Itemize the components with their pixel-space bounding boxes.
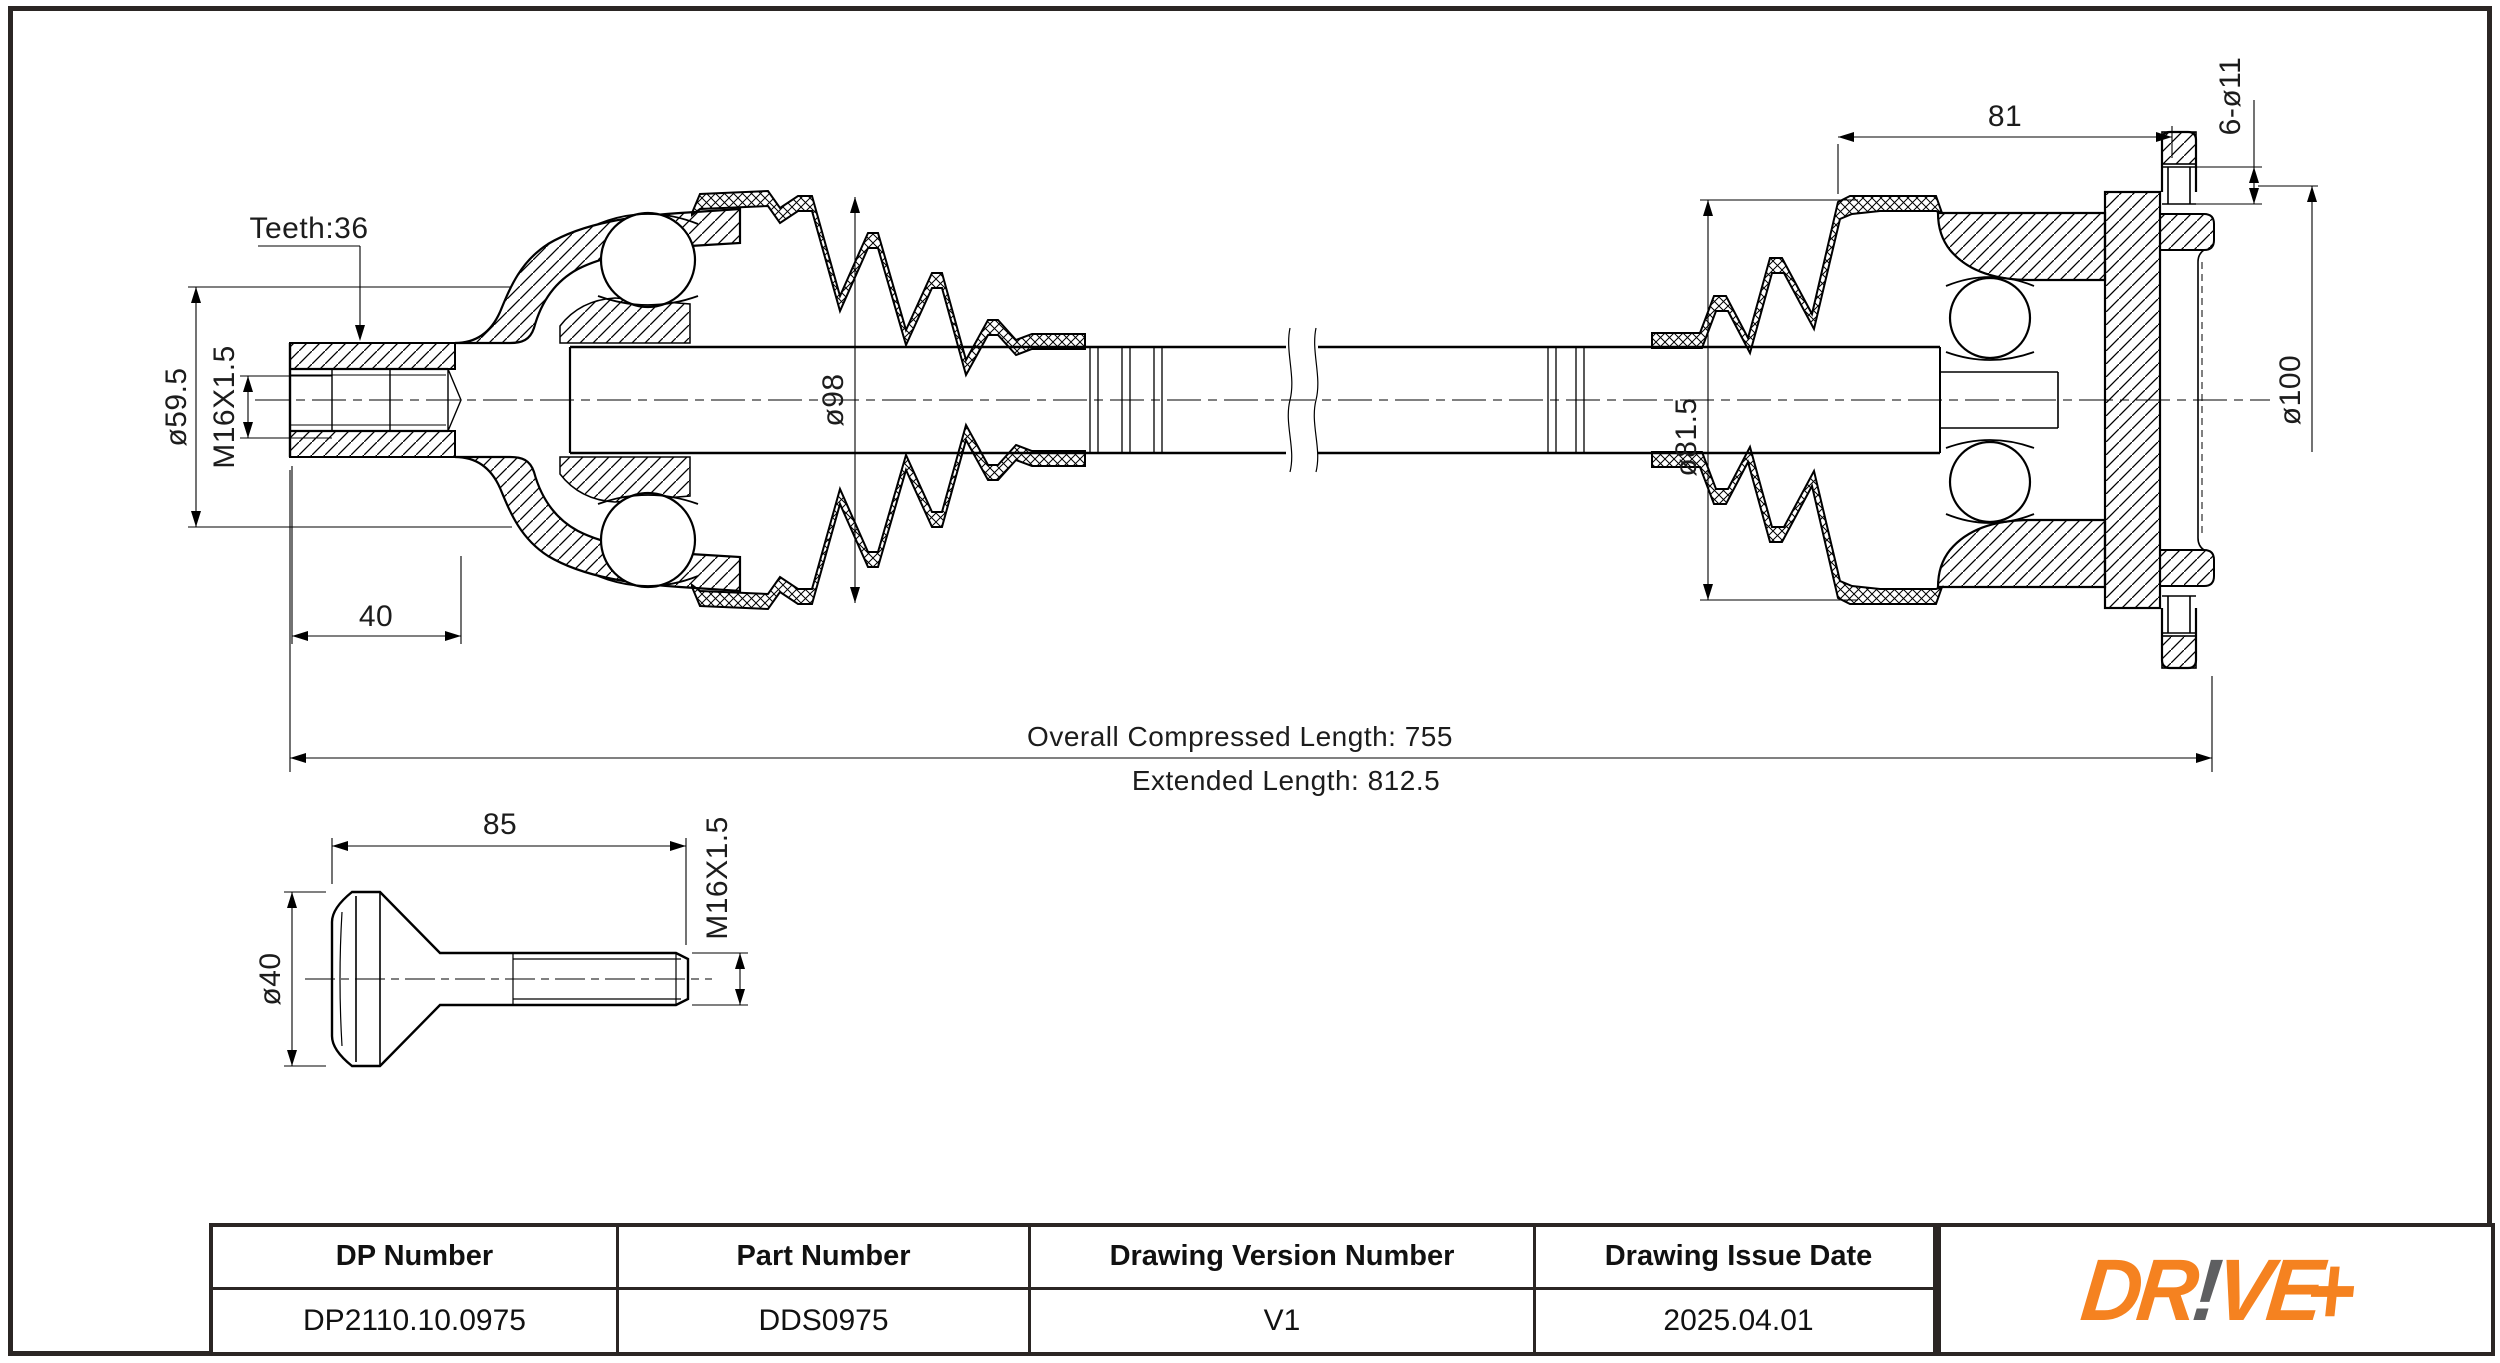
output-flange [2105,132,2214,668]
dim-bolt-holes: 6-ø11 [2214,57,2247,136]
dim-flange-diameter: ø100 [2274,355,2307,425]
drive-plus-logo: DR!VE+ [2077,1246,2355,1333]
dim-bolt-thread: M16X1.5 [701,816,734,940]
title-block-header-drawing-version: Drawing Version Number [1031,1227,1536,1290]
dim-bolt-length: 85 [483,808,517,841]
dim-compressed-length: Overall Compressed Length: 755 [1027,721,1453,752]
logo-plus-icon: + [2301,1241,2355,1339]
brand-logo-box: DR!VE+ [1937,1223,2495,1356]
dimension-lines [188,100,2318,772]
dim-stub-length: 40 [359,600,393,633]
dim-inner-joint-length: 81 [1988,100,2022,133]
bolt-detail-view: 85 ø40 M16X1.5 [254,808,748,1066]
title-block-header-part-number: Part Number [619,1227,1031,1290]
dim-stub-diameter: ø59.5 [160,367,193,446]
title-block-table: DP Number Part Number Drawing Version Nu… [209,1223,1937,1356]
dim-outer-boot-diameter: ø98 [817,373,850,426]
inner-joint-ball-top [1950,278,2030,358]
title-block-value-dp-number: DP2110.10.0975 [213,1290,619,1353]
dim-bolt-head-diameter: ø40 [254,952,287,1005]
technical-drawing-canvas: Teeth:36 ø59.5 M16X1.5 40 ø98 ø81.5 81 6… [0,0,2500,1363]
title-block-header-issue-date: Drawing Issue Date [1536,1227,1941,1290]
dim-inner-boot-diameter: ø81.5 [1670,397,1703,476]
title-block-value-issue-date: 2025.04.01 [1536,1290,1941,1353]
dim-thread-main: M16X1.5 [208,345,241,469]
dim-teeth-label: Teeth:36 [249,212,368,245]
logo-text-dr: DR [2077,1241,2199,1339]
main-assembly-view: Teeth:36 ø59.5 M16X1.5 40 ø98 ø81.5 81 6… [160,57,2318,796]
outer-joint-ball-top [601,213,695,307]
title-block-header-dp-number: DP Number [213,1227,619,1290]
outer-joint-ball-bottom [601,493,695,587]
title-block-value-part-number: DDS0975 [619,1290,1031,1353]
inner-joint-ball-bottom [1950,442,2030,522]
dim-extended-length: Extended Length: 812.5 [1132,765,1440,796]
drawing-sheet: Teeth:36 ø59.5 M16X1.5 40 ø98 ø81.5 81 6… [0,0,2500,1363]
title-block-value-drawing-version: V1 [1031,1290,1536,1353]
